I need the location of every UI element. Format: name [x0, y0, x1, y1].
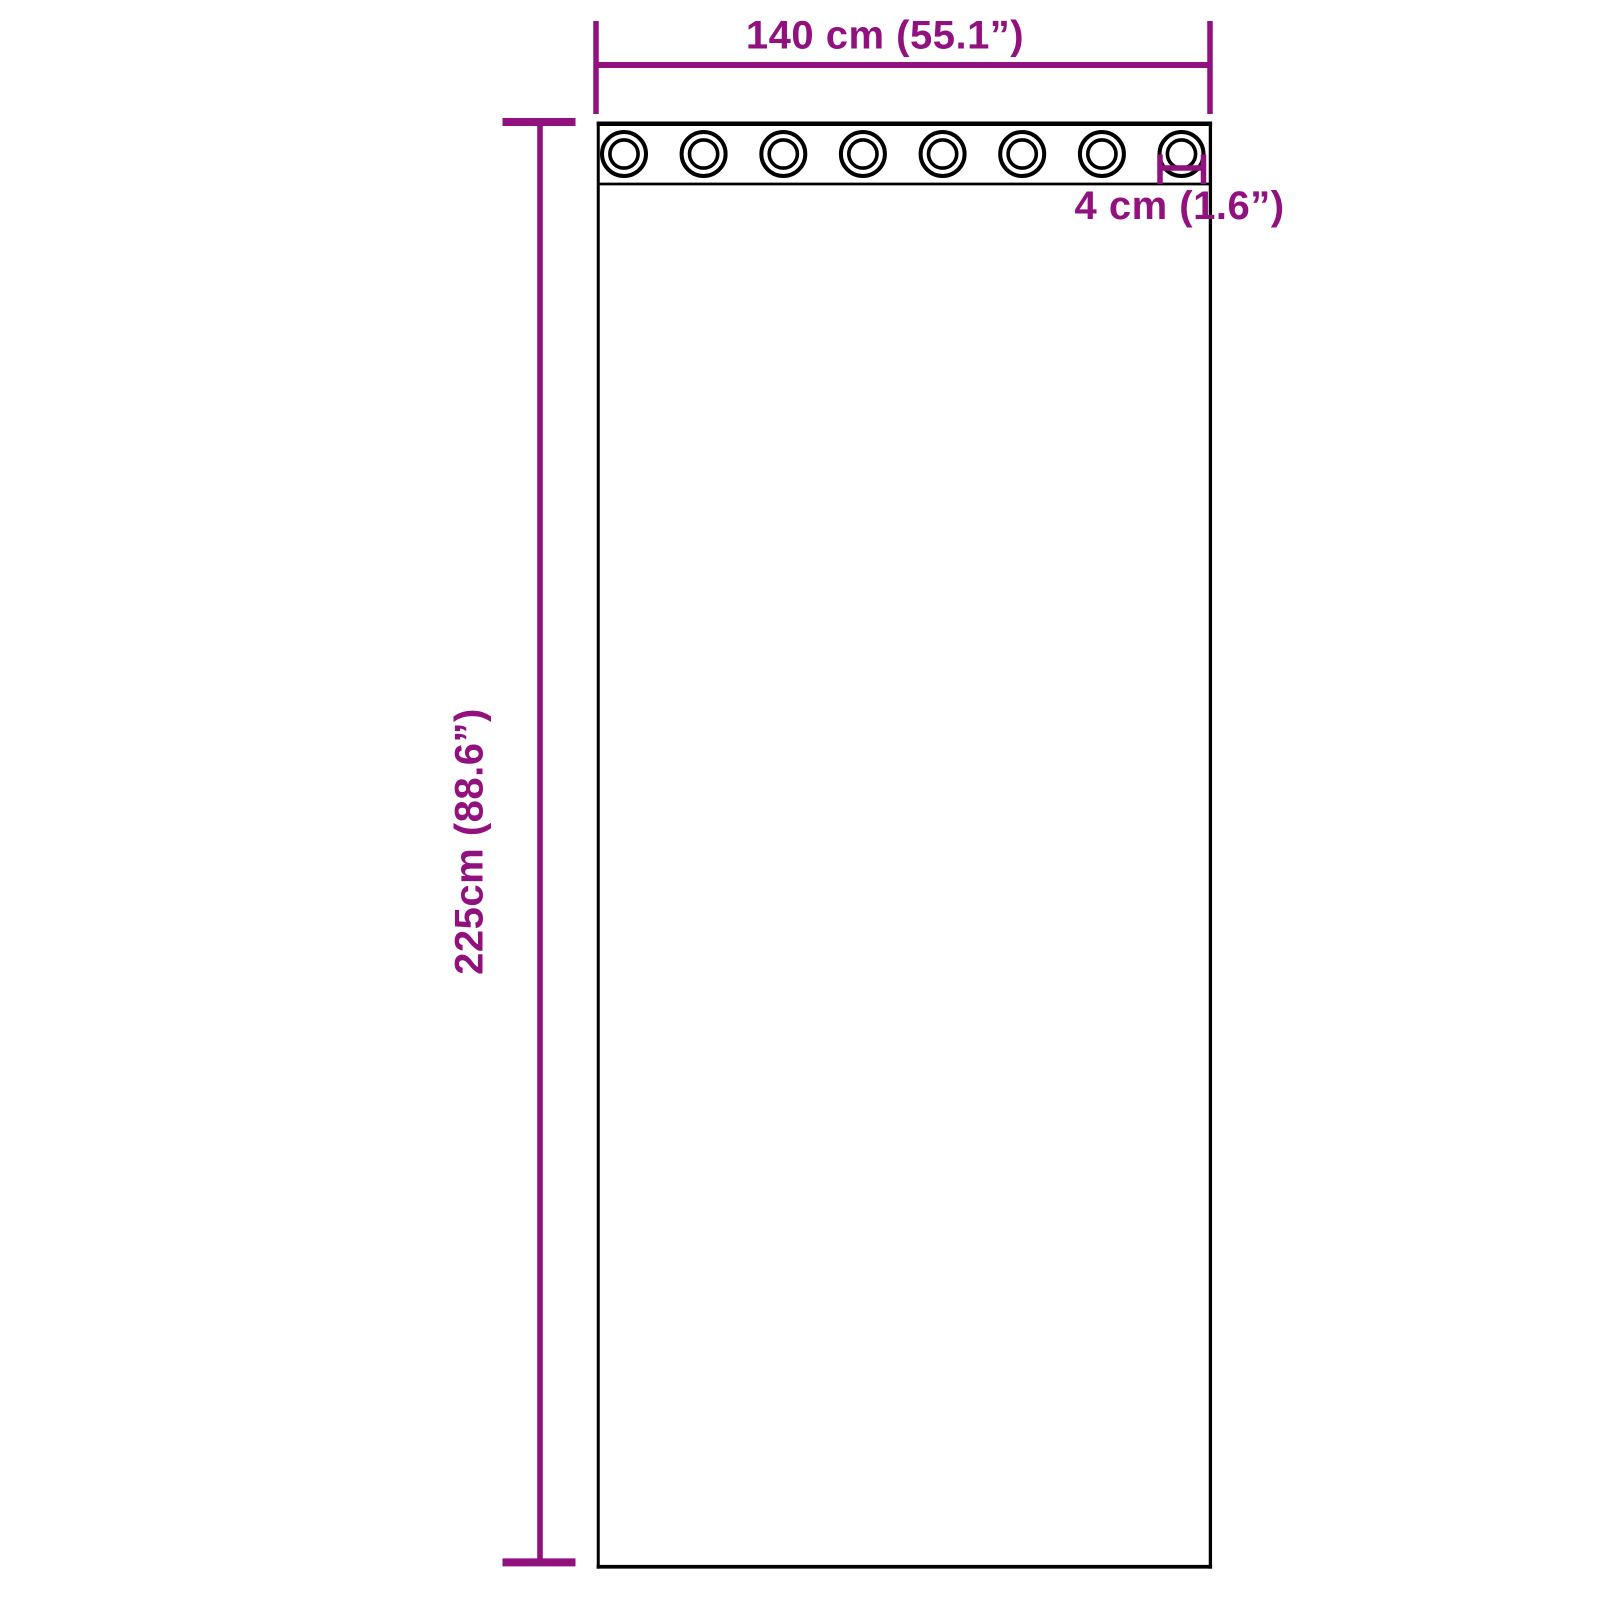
svg-text:140 cm (55.1”): 140 cm (55.1”)	[746, 14, 1024, 58]
svg-text:4 cm (1.6”): 4 cm (1.6”)	[1074, 184, 1284, 228]
svg-text:225cm (88.6”): 225cm (88.6”)	[448, 708, 492, 975]
